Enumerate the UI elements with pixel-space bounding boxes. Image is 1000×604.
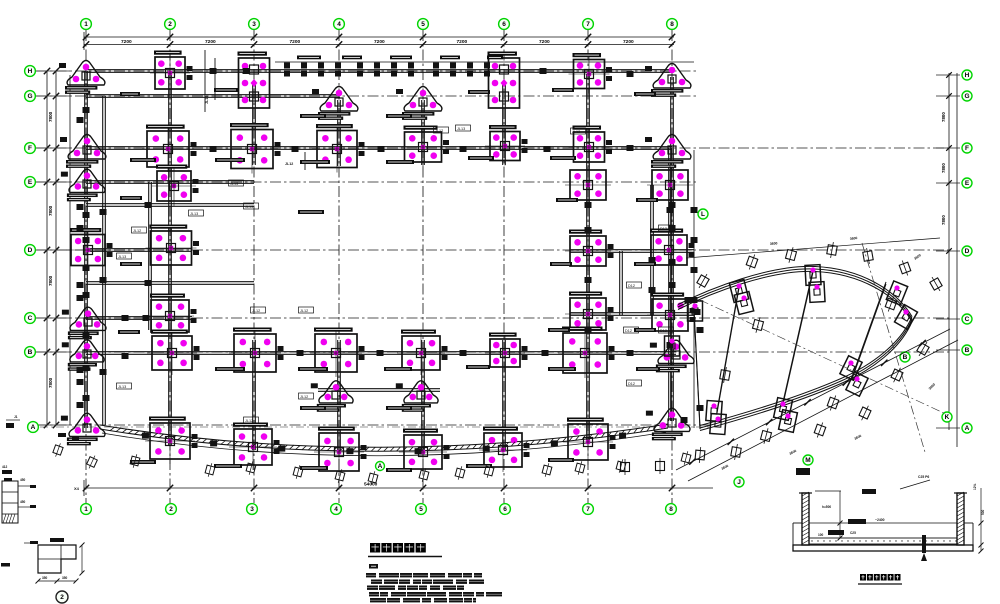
svg-text:JL13: JL13 — [118, 385, 126, 389]
svg-text:7800: 7800 — [941, 163, 946, 173]
svg-text:8: 8 — [669, 506, 673, 513]
svg-text:C: C — [965, 316, 970, 323]
svg-text:C25: C25 — [850, 531, 856, 535]
svg-text:7800: 7800 — [941, 215, 946, 225]
svg-text:G: G — [27, 93, 32, 100]
svg-text:7200: 7200 — [457, 39, 468, 45]
svg-text:D12: D12 — [660, 329, 667, 333]
svg-text:JL12: JL12 — [572, 130, 580, 134]
svg-text:JL12: JL12 — [133, 229, 141, 233]
svg-text:7200: 7200 — [539, 39, 550, 45]
svg-text:500: 500 — [981, 509, 985, 515]
svg-text:7800: 7800 — [941, 112, 946, 122]
svg-text:JL12: JL12 — [300, 395, 308, 399]
svg-text:7800: 7800 — [48, 275, 53, 286]
svg-text:H: H — [28, 68, 33, 75]
svg-text:JL12: JL12 — [435, 129, 443, 133]
svg-text:7200: 7200 — [374, 39, 385, 45]
svg-text:h=500: h=500 — [822, 505, 831, 509]
svg-text:12%: 12% — [973, 483, 977, 490]
svg-text:JL13: JL13 — [118, 255, 126, 259]
svg-text:JL13: JL13 — [245, 205, 253, 209]
svg-text:7200: 7200 — [290, 39, 301, 45]
svg-text:JL12: JL12 — [252, 309, 260, 313]
svg-text:7: 7 — [586, 21, 590, 28]
svg-text:JL13: JL13 — [230, 182, 238, 186]
svg-text:F: F — [28, 145, 32, 152]
svg-text:2: 2 — [168, 21, 172, 28]
svg-text:C: C — [28, 315, 33, 322]
svg-text:JL12: JL12 — [245, 419, 253, 423]
svg-text:F: F — [965, 145, 969, 152]
svg-text:C25 P6: C25 P6 — [918, 475, 929, 479]
svg-text:M: M — [805, 457, 810, 464]
svg-text:G: G — [964, 93, 969, 100]
svg-text:K: K — [945, 414, 950, 421]
svg-text:4: 4 — [337, 21, 341, 28]
svg-text:6: 6 — [503, 506, 507, 513]
svg-text:1: 1 — [84, 506, 88, 513]
svg-text:3600: 3600 — [770, 241, 778, 246]
svg-text:2: 2 — [169, 506, 173, 513]
svg-text:A: A — [965, 425, 970, 432]
svg-text:7800: 7800 — [48, 111, 53, 122]
svg-text:D: D — [28, 247, 33, 254]
svg-text:2: 2 — [60, 594, 64, 601]
svg-text:8: 8 — [670, 21, 674, 28]
svg-text:7: 7 — [586, 506, 590, 513]
svg-text:350: 350 — [42, 576, 48, 580]
svg-text:D12: D12 — [628, 382, 635, 386]
svg-text:4: 4 — [334, 506, 338, 513]
svg-text:3: 3 — [252, 21, 256, 28]
svg-text:7800: 7800 — [48, 377, 53, 388]
svg-text:450: 450 — [20, 478, 26, 482]
svg-text:D: D — [965, 248, 970, 255]
svg-text:H: H — [965, 72, 970, 79]
svg-text:JL13: JL13 — [457, 127, 465, 131]
svg-text:J1: J1 — [14, 415, 18, 419]
svg-text:3: 3 — [250, 506, 254, 513]
svg-text:A: A — [31, 424, 36, 431]
svg-text:7200: 7200 — [205, 39, 216, 45]
svg-text:B: B — [965, 347, 970, 354]
svg-text:5: 5 — [419, 506, 423, 513]
svg-text:7200: 7200 — [623, 39, 634, 45]
svg-text:B: B — [28, 349, 33, 356]
svg-text:E: E — [28, 179, 33, 186]
svg-text:1: 1 — [84, 21, 88, 28]
svg-text:450: 450 — [20, 500, 26, 504]
svg-text:JL12: JL12 — [300, 309, 308, 313]
svg-text:JL13: JL13 — [205, 96, 209, 104]
svg-text:J: J — [737, 479, 741, 486]
svg-text:7800: 7800 — [48, 205, 53, 216]
svg-text:D12: D12 — [660, 227, 667, 231]
svg-text:D12: D12 — [628, 284, 635, 288]
svg-text:D12: D12 — [625, 329, 632, 333]
svg-text:~2400: ~2400 — [875, 518, 885, 522]
svg-text:A: A — [378, 463, 383, 470]
svg-text:350: 350 — [62, 576, 68, 580]
svg-text:B: B — [903, 354, 908, 361]
svg-text:JL13: JL13 — [190, 212, 198, 216]
svg-text:JL12: JL12 — [285, 162, 293, 166]
svg-text:7200: 7200 — [121, 39, 132, 45]
svg-text:6: 6 — [502, 21, 506, 28]
svg-text:E: E — [965, 180, 970, 187]
svg-text:5: 5 — [421, 21, 425, 28]
svg-text:412: 412 — [2, 465, 8, 469]
svg-text:X4: X4 — [74, 486, 80, 491]
svg-text:100: 100 — [818, 533, 824, 537]
svg-text:L: L — [701, 211, 705, 218]
